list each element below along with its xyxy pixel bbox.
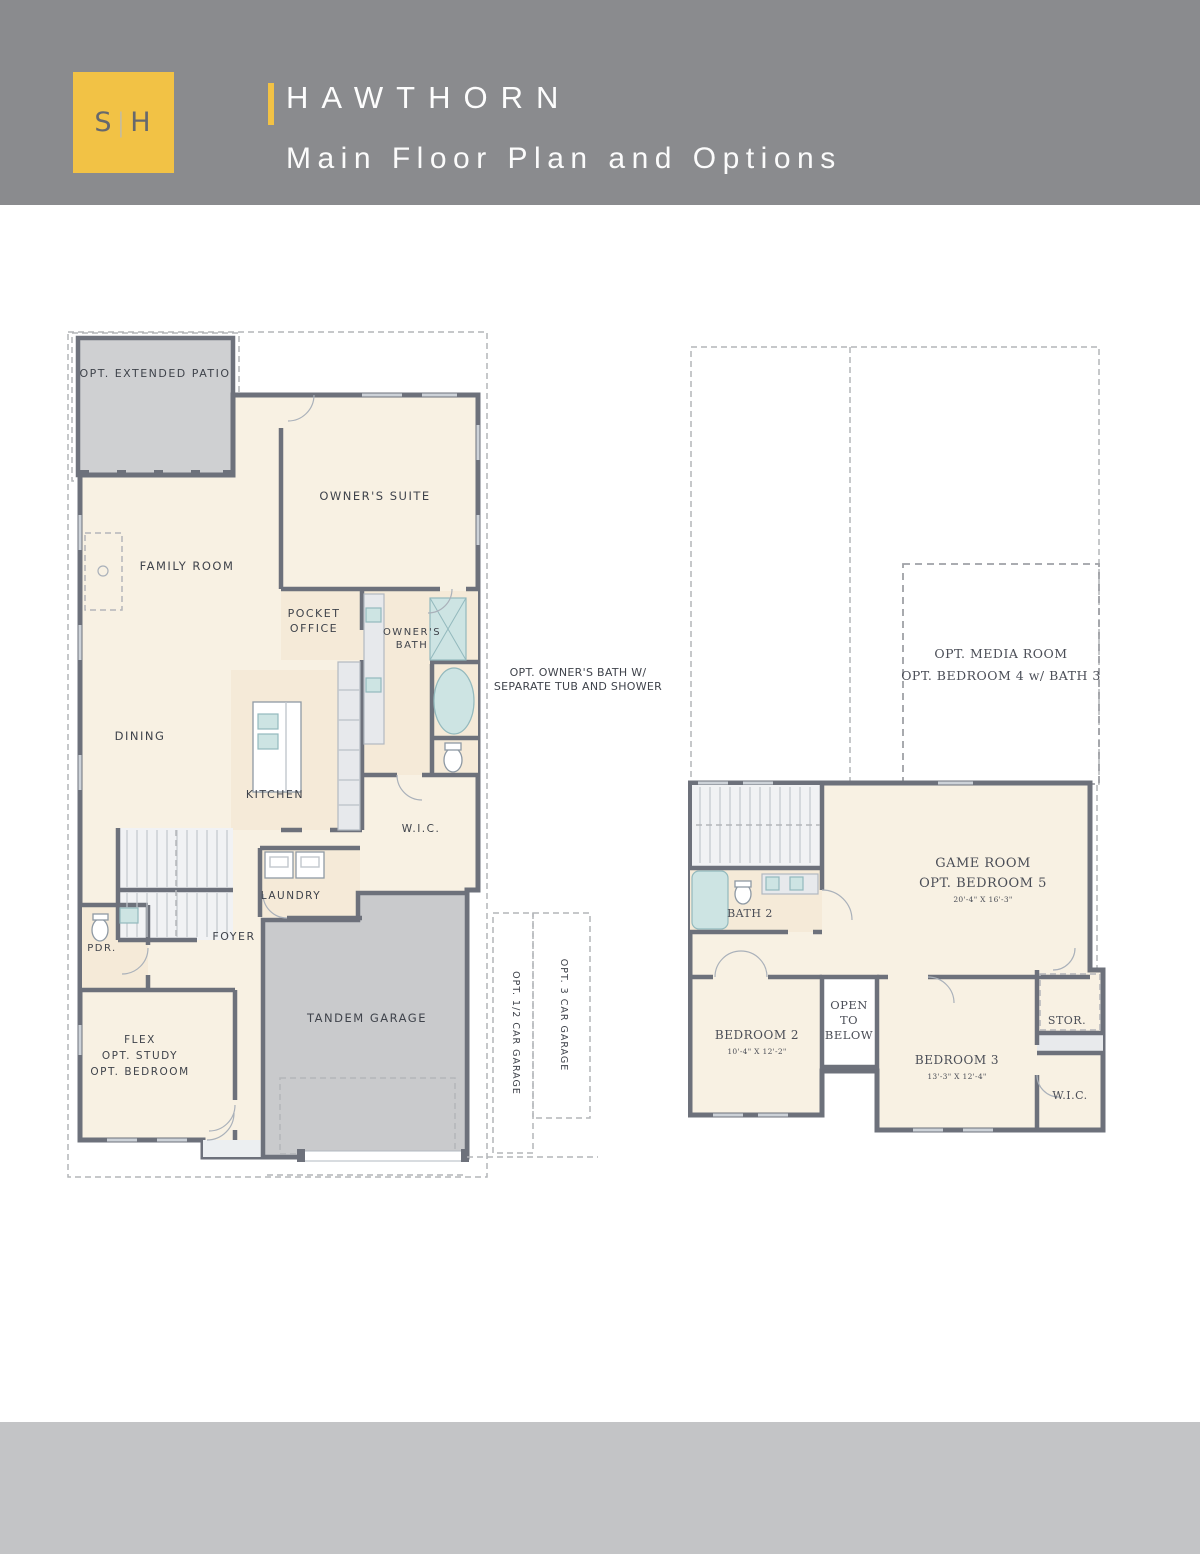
kitchen-cabinets <box>338 662 360 830</box>
logo-letter-s: S <box>94 107 113 138</box>
flyer-page: S | H HAWTHORN Main Floor Plan and Optio… <box>0 0 1200 1554</box>
kitchen-island <box>253 702 301 792</box>
label-owners-suite: OWNER'S SUITE <box>319 489 430 503</box>
opt-owners-bath-note: OPT. OWNER'S BATH W/ SEPARATE TUB AND SH… <box>468 666 688 694</box>
label-open-1: OPEN <box>830 998 868 1012</box>
label-game-room-dims: 20'-4" X 16'-3" <box>953 895 1012 904</box>
opt-owners-bath-note-line1: OPT. OWNER'S BATH W/ <box>468 666 688 680</box>
label-opt-extended-patio: OPT. EXTENDED PATIO <box>80 367 231 380</box>
label-stor: STOR. <box>1048 1014 1086 1027</box>
opt-garage-boxes <box>493 913 590 1153</box>
label-bedroom3-dims: 13'-3" X 12'-4" <box>927 1072 986 1081</box>
brand-logo: S | H <box>73 72 174 173</box>
opt-owners-bath-note-line2: SEPARATE TUB AND SHOWER <box>468 680 688 694</box>
label-pdr: PDR. <box>87 943 117 954</box>
label-bedroom2: BEDROOM 2 <box>715 1028 799 1042</box>
label-family-room: FAMILY ROOM <box>140 559 235 573</box>
label-wic-second: W.I.C. <box>1052 1089 1087 1102</box>
owners-bath-vanity <box>364 594 384 744</box>
opt-extended-patio-area <box>78 338 233 479</box>
label-open-3: BELOW <box>825 1028 873 1042</box>
label-wic-main: W.I.C. <box>402 823 441 835</box>
label-bath2: BATH 2 <box>727 907 773 920</box>
title-accent-bar <box>268 83 274 125</box>
label-owners-bath-2: BATH <box>396 640 429 651</box>
logo-divider: | <box>117 108 128 138</box>
label-game-room-1: GAME ROOM <box>935 856 1031 871</box>
owners-bath-toilet <box>444 743 462 772</box>
tandem-garage-area <box>263 893 598 1175</box>
logo-letter-h: H <box>130 107 152 138</box>
label-opt-media-2: OPT. BEDROOM 4 w/ BATH 3 <box>901 668 1101 683</box>
label-tandem-garage: TANDEM GARAGE <box>306 1011 427 1025</box>
second-floor-plan: OPT. MEDIA ROOM OPT. BEDROOM 4 w/ BATH 3… <box>688 345 1108 1135</box>
label-open-2: TO <box>840 1013 858 1027</box>
label-opt-half-garage: OPT. 1/2 CAR GARAGE <box>510 971 521 1095</box>
label-foyer: FOYER <box>212 930 255 943</box>
label-game-room-2: OPT. BEDROOM 5 <box>919 876 1047 891</box>
label-opt-3car-garage: OPT. 3 CAR GARAGE <box>558 959 569 1072</box>
page-title: HAWTHORN <box>286 80 571 116</box>
label-bedroom3: BEDROOM 3 <box>915 1053 999 1067</box>
label-pocket-office-2: OFFICE <box>290 622 338 635</box>
label-pocket-office-1: POCKET <box>288 607 341 620</box>
page-subtitle: Main Floor Plan and Options <box>286 142 842 176</box>
label-opt-media-1: OPT. MEDIA ROOM <box>934 646 1067 661</box>
label-flex-1: FLEX <box>124 1034 156 1046</box>
label-flex-2: OPT. STUDY <box>102 1050 178 1062</box>
label-kitchen: KITCHEN <box>246 788 304 801</box>
header-band: S | H HAWTHORN Main Floor Plan and Optio… <box>0 0 1200 205</box>
label-owners-bath-1: OWNER'S <box>383 627 441 638</box>
label-bedroom2-dims: 10'-4" X 12'-2" <box>727 1047 786 1056</box>
label-flex-3: OPT. BEDROOM <box>90 1066 189 1078</box>
label-dining: DINING <box>115 729 166 743</box>
label-laundry: LAUNDRY <box>261 890 321 902</box>
footer-band <box>0 1422 1200 1554</box>
main-floor-plan: OPT. EXTENDED PATIO OWNER'S SUITE FAMILY… <box>62 330 610 1182</box>
brand-logo-letters: S | H <box>94 107 152 138</box>
